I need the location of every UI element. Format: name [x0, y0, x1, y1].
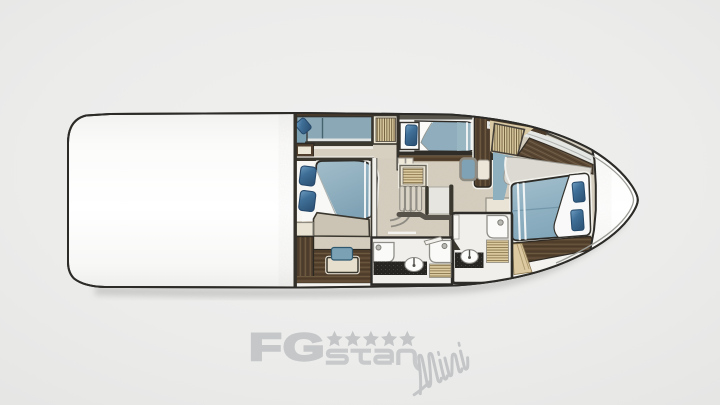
svg-text:FG: FG — [249, 326, 326, 369]
